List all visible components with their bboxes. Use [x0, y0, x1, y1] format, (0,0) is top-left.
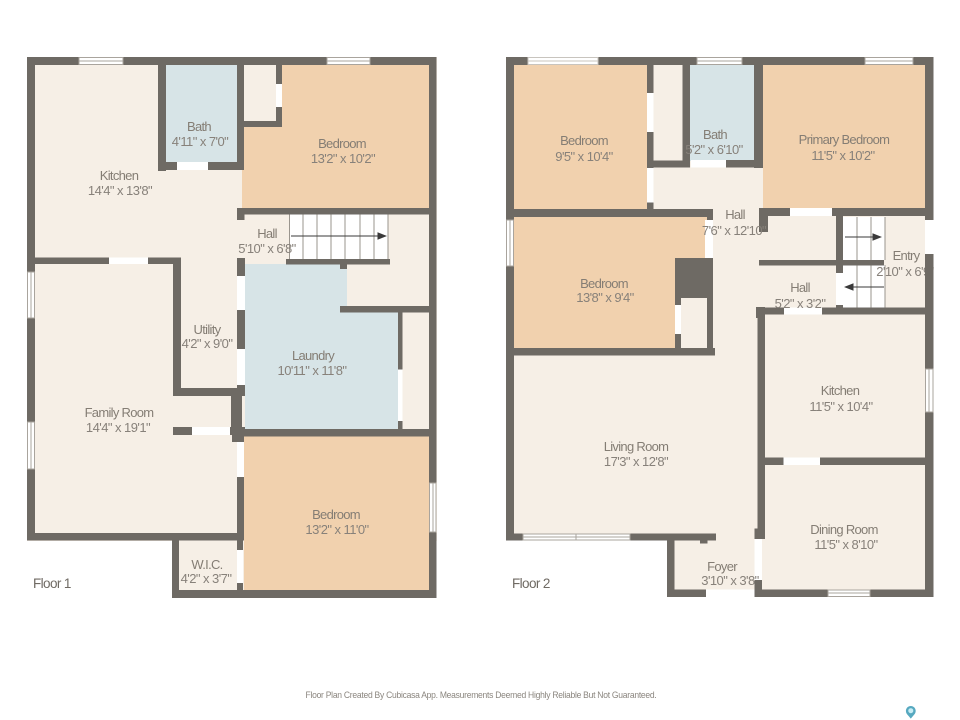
svg-text:5'2" x 6'10": 5'2" x 6'10": [685, 142, 743, 157]
svg-text:Family Room: Family Room: [85, 405, 154, 420]
svg-text:Bedroom: Bedroom: [580, 276, 628, 291]
svg-text:11'5" x 8'10": 11'5" x 8'10": [814, 537, 878, 552]
svg-text:14'4" x 19'1": 14'4" x 19'1": [86, 420, 151, 435]
svg-text:Bedroom: Bedroom: [312, 507, 360, 522]
svg-text:17'3" x 12'8": 17'3" x 12'8": [604, 454, 669, 469]
svg-text:Bedroom: Bedroom: [560, 133, 608, 148]
svg-text:Floor Plan Created By Cubicasa: Floor Plan Created By Cubicasa App. Meas…: [306, 690, 657, 700]
svg-text:14'4" x 13'8": 14'4" x 13'8": [88, 183, 153, 198]
svg-text:Floor 2: Floor 2: [512, 576, 550, 591]
svg-text:Hall: Hall: [257, 226, 277, 241]
svg-text:13'2" x 11'0": 13'2" x 11'0": [305, 522, 369, 537]
svg-text:Entry: Entry: [893, 248, 921, 263]
svg-text:Floor 1: Floor 1: [33, 576, 71, 591]
svg-text:4'11" x 7'0": 4'11" x 7'0": [172, 134, 229, 149]
svg-text:5'2" x 3'2": 5'2" x 3'2": [775, 296, 827, 311]
svg-text:Primary Bedroom: Primary Bedroom: [799, 132, 890, 147]
svg-text:Laundry: Laundry: [292, 348, 335, 363]
svg-text:13'8" x 9'4": 13'8" x 9'4": [576, 290, 634, 305]
svg-text:Kitchen: Kitchen: [100, 168, 139, 183]
svg-text:13'2" x 10'2": 13'2" x 10'2": [311, 151, 376, 166]
svg-text:Dining Room: Dining Room: [810, 522, 877, 537]
svg-text:5'10" x 6'8": 5'10" x 6'8": [238, 241, 296, 256]
svg-text:10'11" x 11'8": 10'11" x 11'8": [278, 363, 348, 378]
svg-text:Bath: Bath: [703, 127, 727, 142]
svg-text:W.I.C.: W.I.C.: [191, 557, 222, 572]
svg-text:11'5" x 10'2": 11'5" x 10'2": [811, 148, 875, 163]
svg-text:Hall: Hall: [725, 207, 745, 222]
svg-text:Bath: Bath: [187, 119, 211, 134]
svg-text:Living Room: Living Room: [604, 439, 669, 454]
svg-text:3'10" x 3'8": 3'10" x 3'8": [701, 573, 759, 588]
svg-text:9'5" x 10'4": 9'5" x 10'4": [555, 149, 613, 164]
svg-text:Utility: Utility: [194, 322, 222, 337]
svg-text:7'6" x 12'10": 7'6" x 12'10": [702, 223, 767, 238]
svg-text:Foyer: Foyer: [707, 559, 738, 574]
svg-text:Bedroom: Bedroom: [318, 136, 366, 151]
svg-text:4'2" x 9'0": 4'2" x 9'0": [182, 336, 234, 351]
svg-text:Kitchen: Kitchen: [821, 383, 860, 398]
svg-text:11'5" x 10'4": 11'5" x 10'4": [809, 399, 873, 414]
svg-text:4'2" x 3'7": 4'2" x 3'7": [181, 571, 233, 586]
svg-text:Hall: Hall: [790, 280, 810, 295]
